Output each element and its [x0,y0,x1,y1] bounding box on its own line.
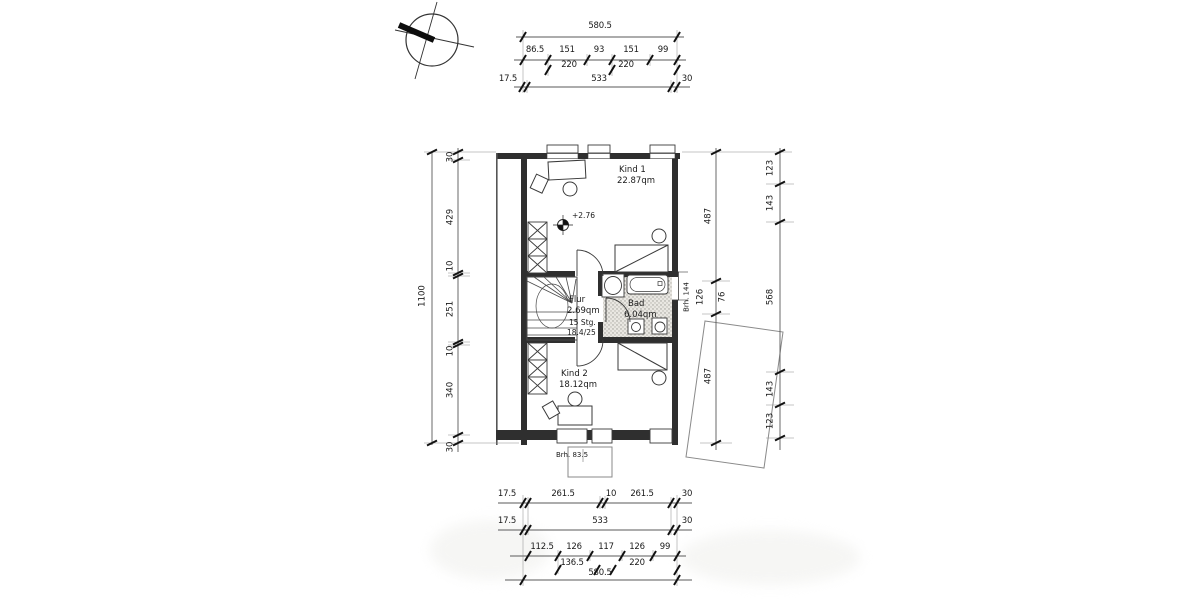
dim-label: 17.5 [498,489,516,499]
level-marker-label: +2.76 [572,211,595,220]
dim-label: 429 [447,209,456,225]
dim-label: 261.5 [551,489,574,499]
floorplan-drawing [0,0,1200,600]
dim-label: 123 [767,413,776,429]
dim-label: 533 [592,516,608,526]
floorplan-page: Kind 1 22.87qm Flur 2.69qm 15 Stg. 18.4/… [0,0,1200,600]
dim-label: 76 [719,292,728,303]
dim-label: 580.5 [588,568,611,578]
bad-area: 6.04qm [624,310,657,320]
dim-label: 261.5 [630,489,653,499]
dim-label: 117 [598,542,614,552]
dim-label: 86.5 [526,45,544,55]
room1-area: 22.87qm [617,176,655,186]
dim-label: 126 [566,542,582,552]
north-compass-icon [395,2,474,79]
dim-label: 30 [682,74,692,84]
flur-name: Flur [569,295,585,305]
flur-area: 2.69qm [567,306,600,316]
stair-count-label: 15 Stg. [569,318,596,327]
dim-label: 30 [682,516,692,526]
bad-name: Bad [628,299,644,309]
dim-label: 126 [629,542,645,552]
dim-label: 10 [447,261,456,272]
room2-name: Kind 2 [561,369,588,379]
dim-label: 30 [682,489,692,499]
dim-label: 30 [447,152,456,163]
dim-label: 99 [660,542,670,552]
dim-label: 340 [447,382,456,398]
dim-label: 143 [767,381,776,397]
dim-label: 220 [629,558,645,568]
dim-label: 251 [447,301,456,317]
dim-label: 580.5 [588,21,611,31]
parapet-right-label: Brh. 144 [683,282,692,312]
dim-label: 220 [618,60,634,70]
dim-label: 10 [606,489,616,499]
dim-label: 17.5 [499,74,517,84]
stair-ratio-label: 18.4/25 [567,328,596,337]
dim-label: 151 [559,45,575,55]
dim-label: 99 [658,45,668,55]
room2-area: 18.12qm [559,380,597,390]
dim-label: 112.5 [530,542,553,552]
dim-label: 533 [591,74,607,84]
dim-label: 10 [447,346,456,357]
dim-label: 568 [767,289,776,305]
dim-label: 17.5 [498,516,516,526]
dim-label: 143 [767,195,776,211]
room1-name: Kind 1 [619,165,646,175]
dim-label: 136.5 [560,558,583,568]
wardrobe-kind1 [528,222,547,273]
dim-label: 220 [561,60,577,70]
dim-label: 1100 [419,285,428,307]
level-marker-symbol [553,215,573,235]
parapet-bottom-label: Brh. 83.5 [556,451,588,459]
wardrobe-kind2 [528,343,547,394]
dim-label: 123 [767,160,776,176]
dim-label: 151 [623,45,639,55]
dim-label: 30 [447,442,456,453]
dim-label: 487 [705,368,714,384]
dim-label: 93 [594,45,604,55]
dim-label: 126 [697,289,706,305]
dim-label: 487 [705,208,714,224]
